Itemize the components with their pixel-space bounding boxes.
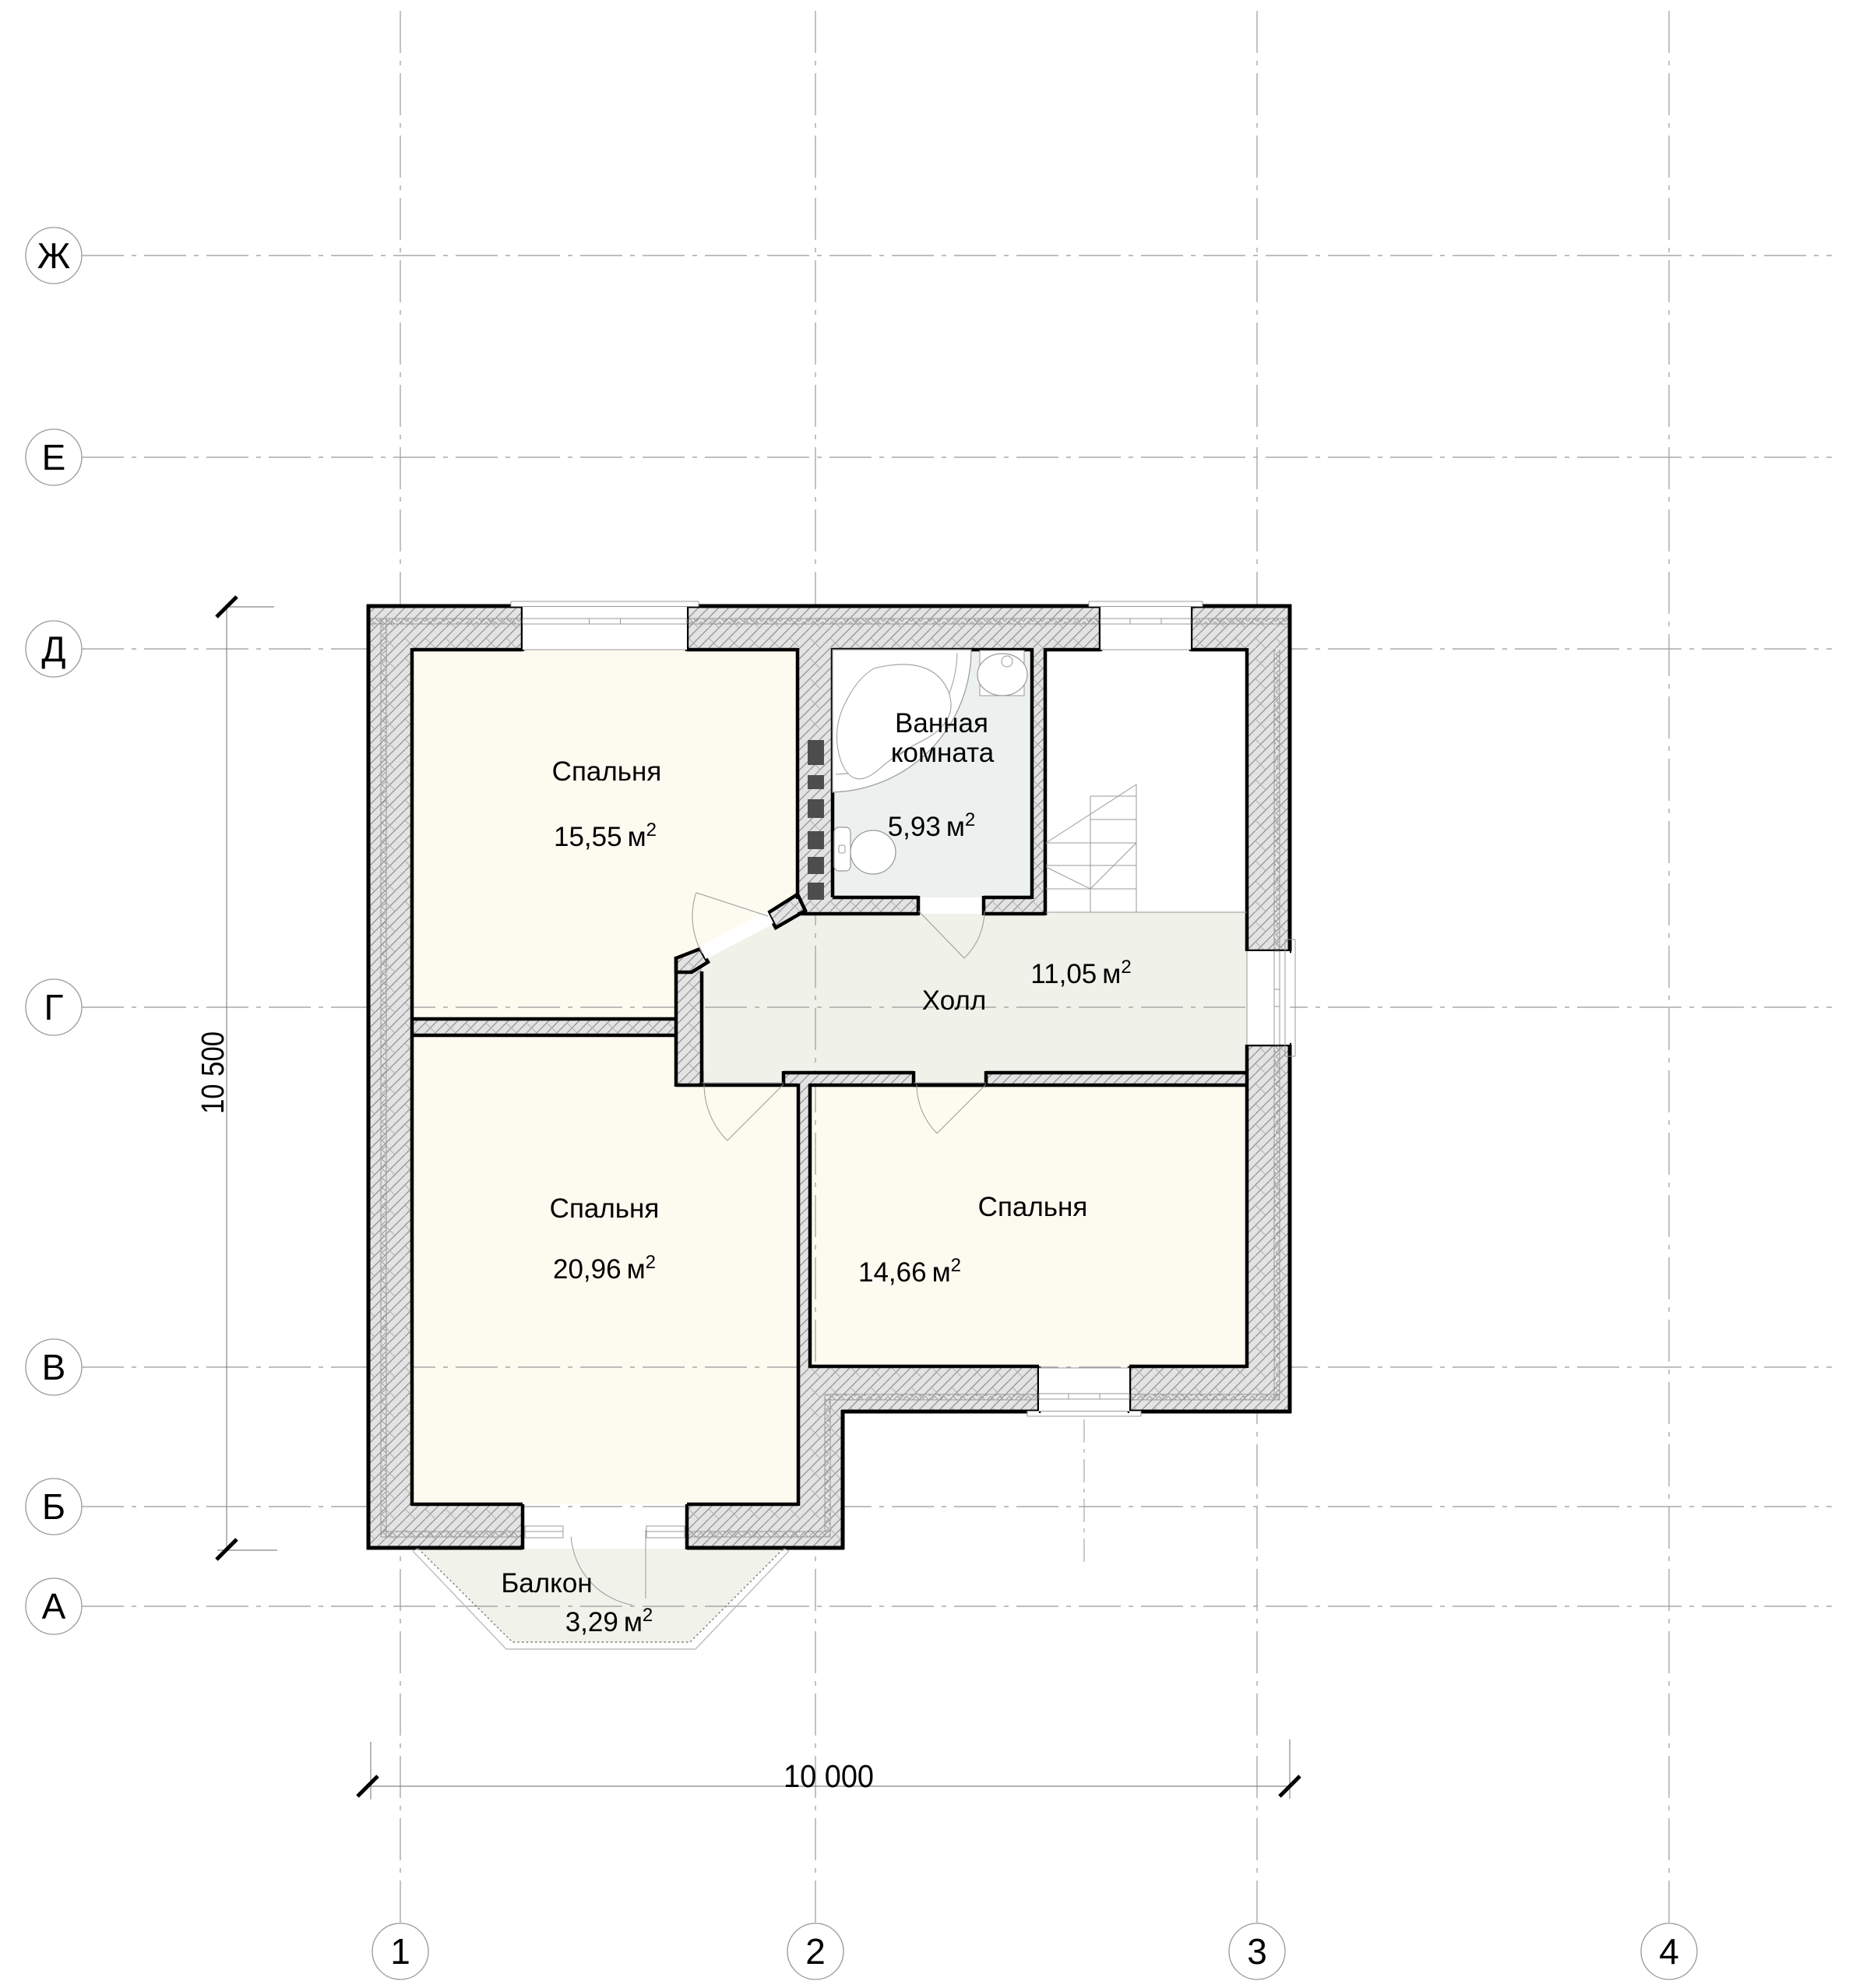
svg-text:комната: комната xyxy=(891,738,995,768)
svg-text:В: В xyxy=(42,1347,66,1387)
svg-text:3: 3 xyxy=(1247,1931,1267,1972)
svg-text:А: А xyxy=(42,1586,66,1627)
svg-text:5,93 м2: 5,93 м2 xyxy=(888,809,976,842)
svg-text:14,66 м2: 14,66 м2 xyxy=(858,1255,961,1288)
svg-text:3,29 м2: 3,29 м2 xyxy=(565,1605,653,1637)
svg-text:Ж: Ж xyxy=(37,235,70,276)
svg-text:Д: Д xyxy=(41,629,65,669)
svg-text:Ванная: Ванная xyxy=(895,708,988,738)
svg-text:Е: Е xyxy=(42,437,66,478)
svg-text:Спальня: Спальня xyxy=(978,1192,1088,1222)
svg-text:Г: Г xyxy=(44,987,64,1027)
svg-text:2: 2 xyxy=(805,1931,826,1972)
svg-text:10 500: 10 500 xyxy=(195,1031,231,1114)
svg-text:11,05 м2: 11,05 м2 xyxy=(1030,957,1131,989)
svg-text:Спальня: Спальня xyxy=(550,1193,660,1224)
svg-text:20,96 м2: 20,96 м2 xyxy=(553,1252,656,1285)
svg-text:Балкон: Балкон xyxy=(501,1568,592,1599)
svg-text:Б: Б xyxy=(42,1486,65,1527)
svg-text:15,55 м2: 15,55 м2 xyxy=(554,820,657,852)
svg-text:Холл: Холл xyxy=(922,985,987,1016)
svg-text:10 000: 10 000 xyxy=(784,1758,874,1794)
svg-text:1: 1 xyxy=(390,1931,410,1972)
svg-text:4: 4 xyxy=(1659,1931,1679,1972)
svg-text:Спальня: Спальня xyxy=(552,756,662,787)
